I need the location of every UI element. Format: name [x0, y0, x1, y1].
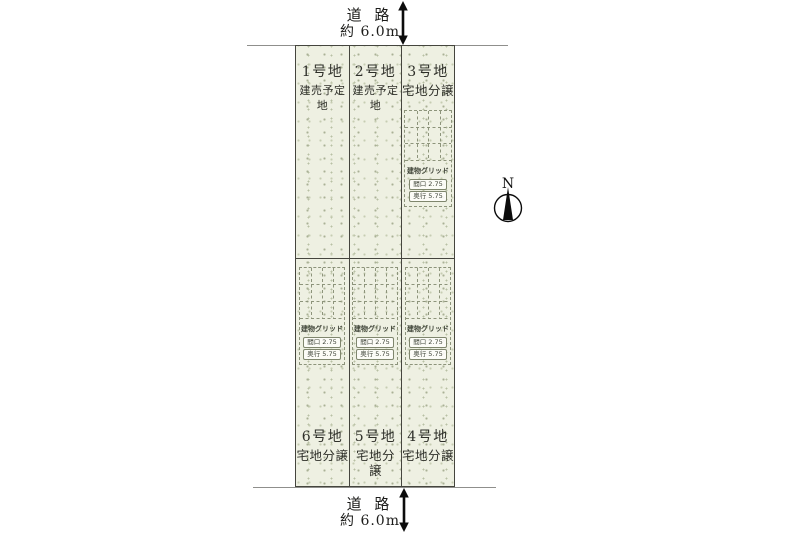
building-grid-depth: 奥行 5.75 [356, 349, 394, 360]
road-bottom-label: 道 路 [310, 495, 430, 513]
lot-6-name: 6号地 [296, 429, 349, 446]
lot-5-name: 5号地 [350, 429, 401, 446]
building-grid-depth: 奥行 5.75 [409, 349, 447, 360]
building-grid-lot-4: 建物グリッド 間口 2.75 奥行 5.75 [405, 267, 451, 365]
lot-2-name: 2号地 [350, 64, 401, 81]
lot-2-label: 2号地 建売予定地 [350, 64, 401, 113]
building-grid-frontage: 間口 2.75 [409, 179, 447, 190]
site-plan-diagram: 道 路 約 6.0m 1号地 建売予定地 2号地 建売予定地 3号地 宅地分譲 … [0, 0, 801, 534]
lot-5-type: 宅地分譲 [350, 448, 401, 478]
lot-1-name: 1号地 [296, 64, 349, 81]
road-top: 道 路 約 6.0m [310, 6, 430, 41]
road-top-width-label: 約 6.0m [310, 24, 430, 41]
lot-4-name: 4号地 [402, 429, 454, 446]
lot-2-type: 建売予定地 [350, 83, 401, 113]
building-grid-cells [353, 268, 397, 319]
building-grid-dimensions: 間口 2.75 奥行 5.75 [409, 178, 447, 202]
road-bottom-width-label: 約 6.0m [310, 513, 430, 530]
road-bottom-edge-line [253, 487, 496, 488]
lot-3-name: 3号地 [402, 64, 454, 81]
building-grid-lot-5: 建物グリッド 間口 2.75 奥行 5.75 [352, 267, 398, 365]
building-grid-label: 建物グリッド [301, 325, 343, 334]
building-grid-frontage: 間口 2.75 [409, 337, 447, 348]
building-grid-depth: 奥行 5.75 [409, 191, 447, 202]
building-grid-cells [406, 268, 450, 319]
lot-divider-horizontal [296, 258, 454, 259]
building-grid-label: 建物グリッド [407, 167, 449, 176]
road-top-label: 道 路 [310, 6, 430, 24]
lot-3-label: 3号地 宅地分譲 [402, 64, 454, 98]
north-compass-icon: N [486, 172, 530, 230]
lot-1-type: 建売予定地 [296, 83, 349, 113]
lot-4-label: 4号地 宅地分譲 [402, 429, 454, 463]
lot-1-label: 1号地 建売予定地 [296, 64, 349, 113]
building-grid-lot-3: 建物グリッド 間口 2.75 奥行 5.75 [404, 110, 452, 207]
building-grid-cells [300, 268, 344, 319]
lot-3-type: 宅地分譲 [402, 83, 454, 98]
building-grid-dimensions: 間口 2.75 奥行 5.75 [303, 336, 341, 360]
lot-6-label: 6号地 宅地分譲 [296, 429, 349, 463]
lot-6-type: 宅地分譲 [296, 448, 349, 463]
lot-block: 1号地 建売予定地 2号地 建売予定地 3号地 宅地分譲 6号地 宅地分譲 5号… [295, 45, 455, 487]
building-grid-depth: 奥行 5.75 [303, 349, 341, 360]
building-grid-label: 建物グリッド [354, 325, 396, 334]
road-top-width-arrow [396, 1, 410, 45]
building-grid-frontage: 間口 2.75 [303, 337, 341, 348]
building-grid-dimensions: 間口 2.75 奥行 5.75 [409, 336, 447, 360]
lot-divider-vertical-2 [401, 46, 402, 486]
building-grid-frontage: 間口 2.75 [356, 337, 394, 348]
lot-5-label: 5号地 宅地分譲 [350, 429, 401, 478]
building-grid-cells [405, 111, 451, 161]
building-grid-label: 建物グリッド [407, 325, 449, 334]
road-bottom: 道 路 約 6.0m [310, 495, 430, 530]
building-grid-lot-6: 建物グリッド 間口 2.75 奥行 5.75 [299, 267, 345, 365]
building-grid-dimensions: 間口 2.75 奥行 5.75 [356, 336, 394, 360]
lot-4-type: 宅地分譲 [402, 448, 454, 463]
